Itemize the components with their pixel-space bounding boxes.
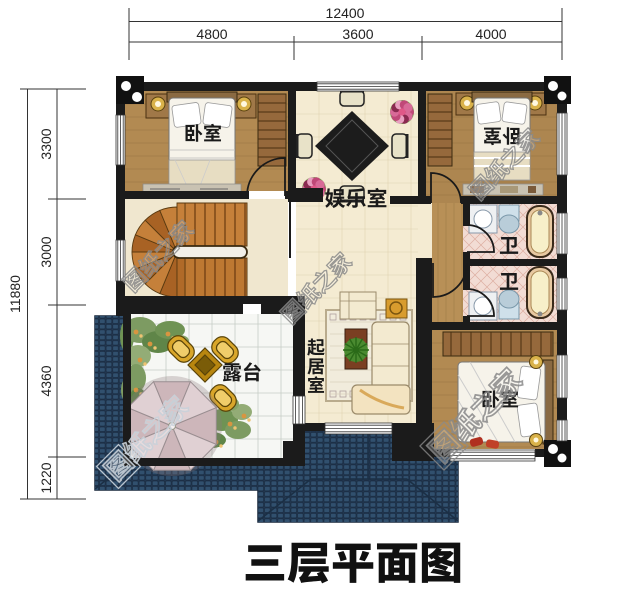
svg-text:3600: 3600 [342, 26, 373, 42]
svg-text:4360: 4360 [38, 365, 54, 396]
svg-text:12400: 12400 [326, 5, 365, 21]
svg-text:3300: 3300 [38, 128, 54, 159]
svg-text:11880: 11880 [7, 275, 23, 313]
svg-text:4800: 4800 [196, 26, 227, 42]
svg-text:3000: 3000 [38, 236, 54, 267]
svg-text:4000: 4000 [475, 26, 506, 42]
svg-text:1220: 1220 [38, 462, 54, 493]
